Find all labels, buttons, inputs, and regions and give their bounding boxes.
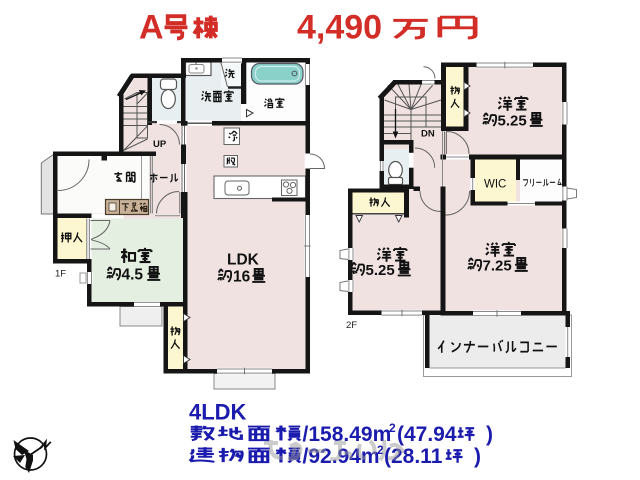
svg-text:(47.94: (47.94 bbox=[397, 423, 457, 446]
svg-text:): ) bbox=[486, 423, 493, 446]
svg-text:16: 16 bbox=[233, 269, 251, 286]
svg-text:WIC: WIC bbox=[484, 179, 506, 191]
svg-text:2F: 2F bbox=[346, 320, 357, 331]
svg-text:A: A bbox=[139, 9, 164, 47]
svg-text:7.25: 7.25 bbox=[483, 258, 512, 275]
svg-text:DN: DN bbox=[421, 129, 435, 140]
svg-text:2: 2 bbox=[389, 421, 396, 435]
svg-text:1F: 1F bbox=[55, 269, 66, 280]
svg-text:5.25: 5.25 bbox=[366, 262, 395, 279]
svg-text:5.25: 5.25 bbox=[498, 113, 527, 130]
svg-text:): ) bbox=[474, 445, 481, 468]
svg-text:UP: UP bbox=[153, 139, 167, 150]
svg-text:4LDK: 4LDK bbox=[189, 400, 247, 425]
svg-text:LDK: LDK bbox=[227, 252, 260, 269]
svg-text:4.5: 4.5 bbox=[122, 267, 144, 284]
svg-text:4,490: 4,490 bbox=[297, 9, 382, 47]
